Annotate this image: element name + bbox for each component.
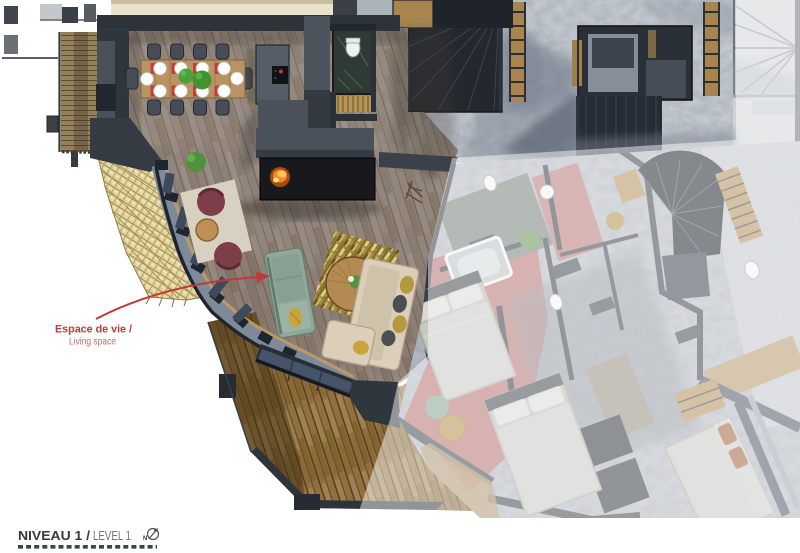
svg-text:N: N [143, 536, 147, 542]
svg-text:Living space: Living space [69, 336, 116, 348]
svg-text:Espace de vie /: Espace de vie / [55, 324, 132, 336]
svg-text:LEVEL 1: LEVEL 1 [93, 529, 131, 543]
svg-text:NIVEAU 1 /: NIVEAU 1 / [18, 528, 90, 543]
